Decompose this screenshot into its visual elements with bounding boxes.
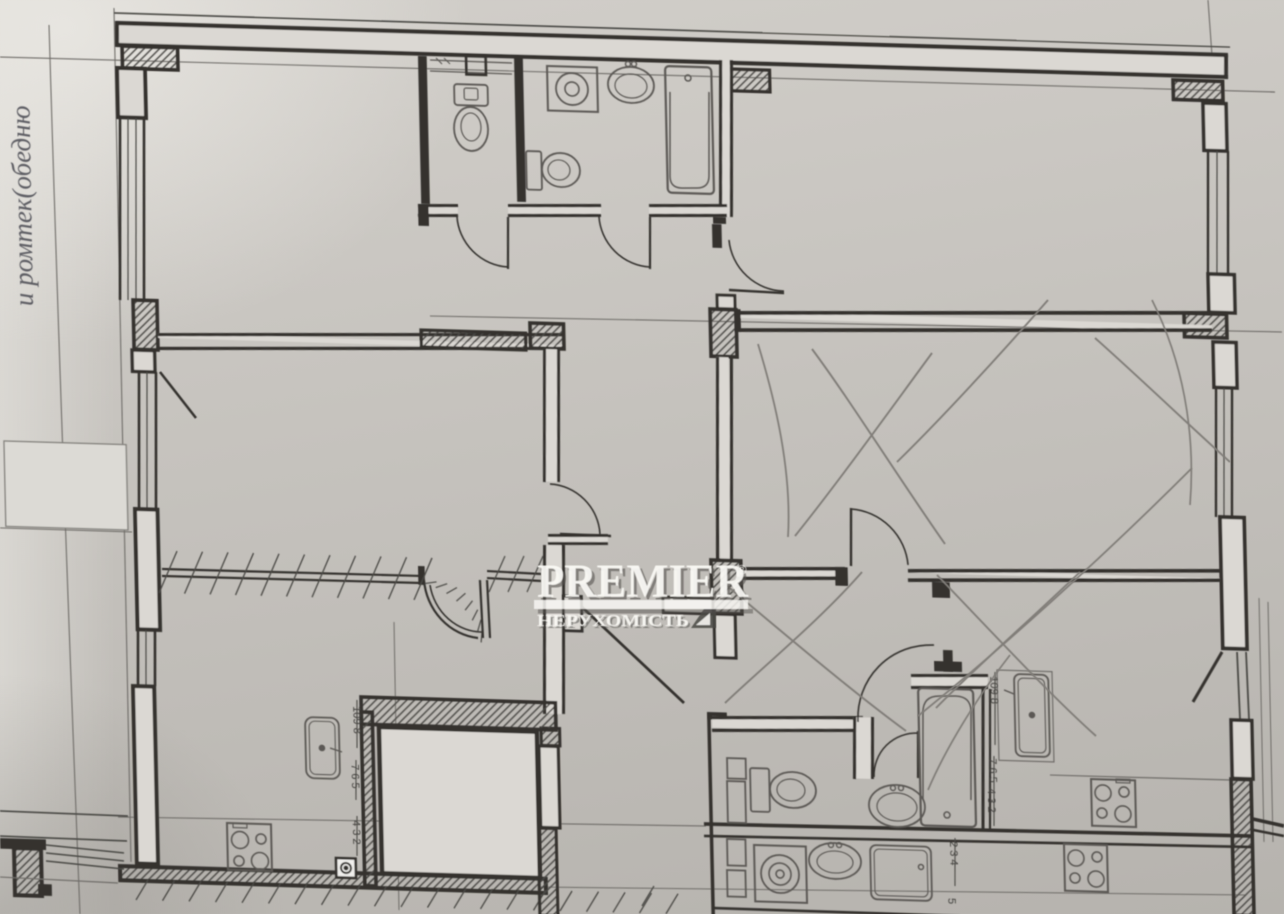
svg-text:PREMIER: PREMIER — [537, 555, 749, 608]
svg-text:2 3 4: 2 3 4 — [947, 841, 960, 866]
svg-text:4 3 2: 4 3 2 — [350, 820, 363, 845]
svg-text:4 3 2: 4 3 2 — [985, 788, 998, 813]
svg-text:5: 5 — [945, 898, 957, 904]
svg-text:7 6 5: 7 6 5 — [349, 764, 362, 789]
svg-text:®: ® — [737, 562, 747, 577]
svg-text:и ромтек(обедню: и ромтек(обедню — [6, 105, 39, 306]
svg-text:109 8: 109 8 — [987, 676, 1000, 704]
svg-text:НЕРУХОМІСТЬ: НЕРУХОМІСТЬ — [537, 611, 689, 630]
svg-text:7 6 5: 7 6 5 — [986, 758, 999, 783]
